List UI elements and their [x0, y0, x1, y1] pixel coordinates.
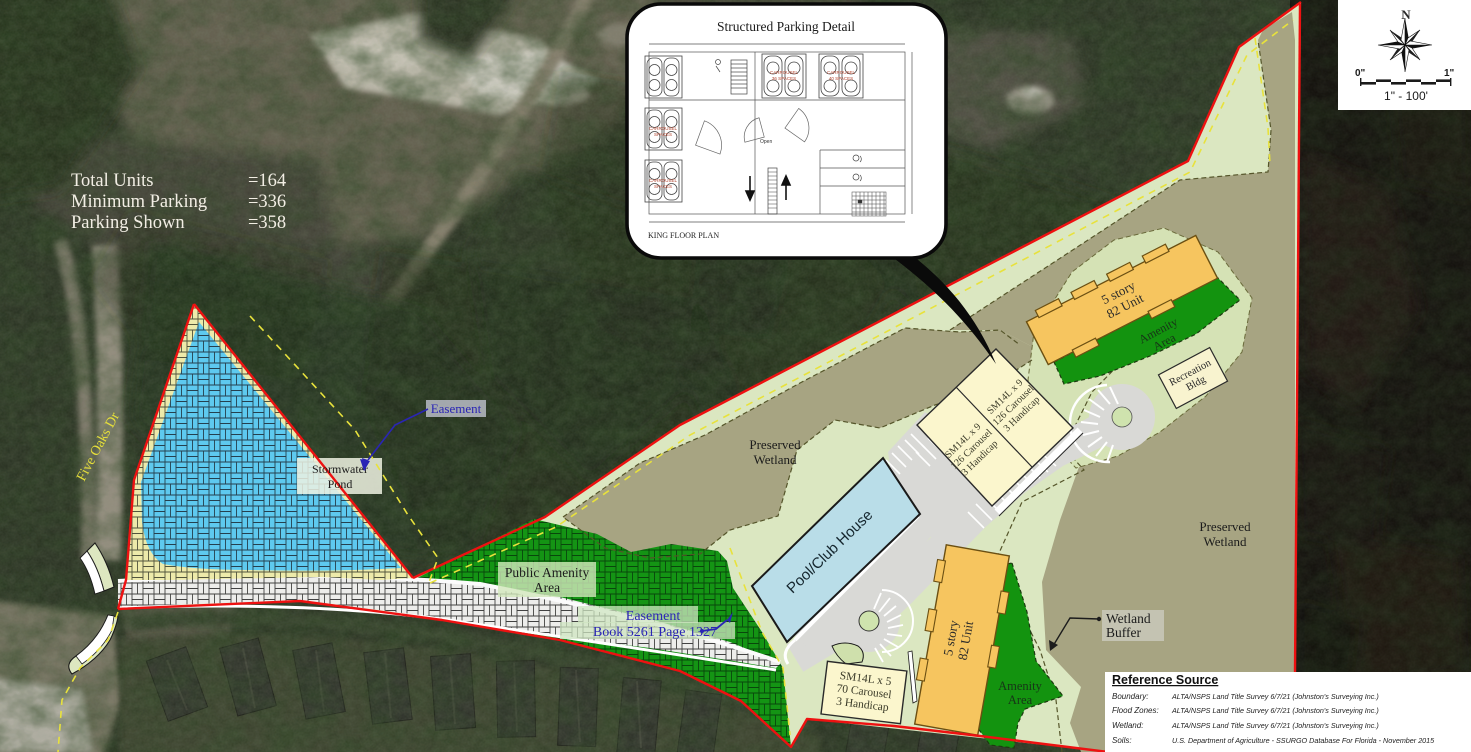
svg-text:Soils:: Soils: — [1112, 736, 1132, 745]
svg-text:SPACES: SPACES — [654, 184, 672, 189]
svg-text:CARROUSEL: CARROUSEL — [770, 70, 799, 75]
svg-text:Preserved: Preserved — [1199, 519, 1251, 534]
svg-text:1": 1" — [1444, 68, 1455, 79]
svg-text:Flood Zones:: Flood Zones: — [1112, 706, 1159, 715]
svg-text:SPACES: SPACES — [654, 132, 672, 137]
svg-text:Public Amenity: Public Amenity — [505, 565, 590, 580]
svg-text:Open: Open — [760, 139, 772, 145]
svg-text:40 SPACES: 40 SPACES — [829, 76, 853, 81]
svg-text:CARROUSEL: CARROUSEL — [649, 126, 678, 131]
svg-text:Easement: Easement — [626, 609, 681, 624]
svg-text:Area: Area — [1008, 693, 1033, 707]
svg-text:Amenity: Amenity — [998, 679, 1042, 693]
svg-text:=164: =164 — [248, 171, 286, 191]
svg-text:Preserved: Preserved — [749, 437, 801, 452]
svg-text:U.S. Department of Agriculture: U.S. Department of Agriculture - SSURGO … — [1172, 736, 1435, 745]
svg-text:1" - 100': 1" - 100' — [1384, 89, 1428, 103]
svg-text:Reference Source: Reference Source — [1112, 673, 1218, 687]
svg-text:0": 0" — [1355, 68, 1366, 79]
svg-text:Total Units: Total Units — [71, 171, 153, 191]
svg-text:CARROUSEL: CARROUSEL — [649, 178, 678, 183]
svg-text:N: N — [1401, 7, 1411, 22]
svg-text:Stormwater: Stormwater — [312, 462, 368, 476]
svg-text:Buffer: Buffer — [1106, 625, 1141, 640]
svg-text:Minimum Parking: Minimum Parking — [71, 192, 207, 212]
svg-text:ALTA/NSPS Land Title Survey 6/: ALTA/NSPS Land Title Survey 6/7/21 (John… — [1171, 721, 1379, 730]
svg-text:ALTA/NSPS Land Title Survey 6/: ALTA/NSPS Land Title Survey 6/7/21 (John… — [1171, 692, 1379, 701]
svg-text:Easement: Easement — [431, 401, 482, 416]
svg-text:Book 5261 Page 1327: Book 5261 Page 1327 — [593, 625, 717, 640]
svg-text:KING FLOOR PLAN: KING FLOOR PLAN — [648, 231, 719, 240]
svg-text:Wetland: Wetland — [1106, 611, 1151, 626]
svg-text:Structured Parking Detail: Structured Parking Detail — [717, 19, 855, 34]
svg-text:Wetland:: Wetland: — [1112, 721, 1143, 730]
svg-text:Parking Shown: Parking Shown — [71, 213, 185, 233]
svg-text:=358: =358 — [248, 213, 286, 233]
svg-text:Wetland: Wetland — [1204, 534, 1247, 549]
svg-text:CARROUSEL: CARROUSEL — [827, 70, 856, 75]
svg-text:Boundary:: Boundary: — [1112, 692, 1148, 701]
svg-text:Pond: Pond — [328, 477, 353, 491]
svg-text:36 SPACES: 36 SPACES — [772, 76, 796, 81]
svg-text:Area: Area — [534, 580, 560, 595]
svg-text:Wetland: Wetland — [754, 452, 797, 467]
svg-text:=336: =336 — [248, 192, 286, 212]
svg-text:ALTA/NSPS Land Title Survey 6/: ALTA/NSPS Land Title Survey 6/7/21 (John… — [1171, 706, 1379, 715]
